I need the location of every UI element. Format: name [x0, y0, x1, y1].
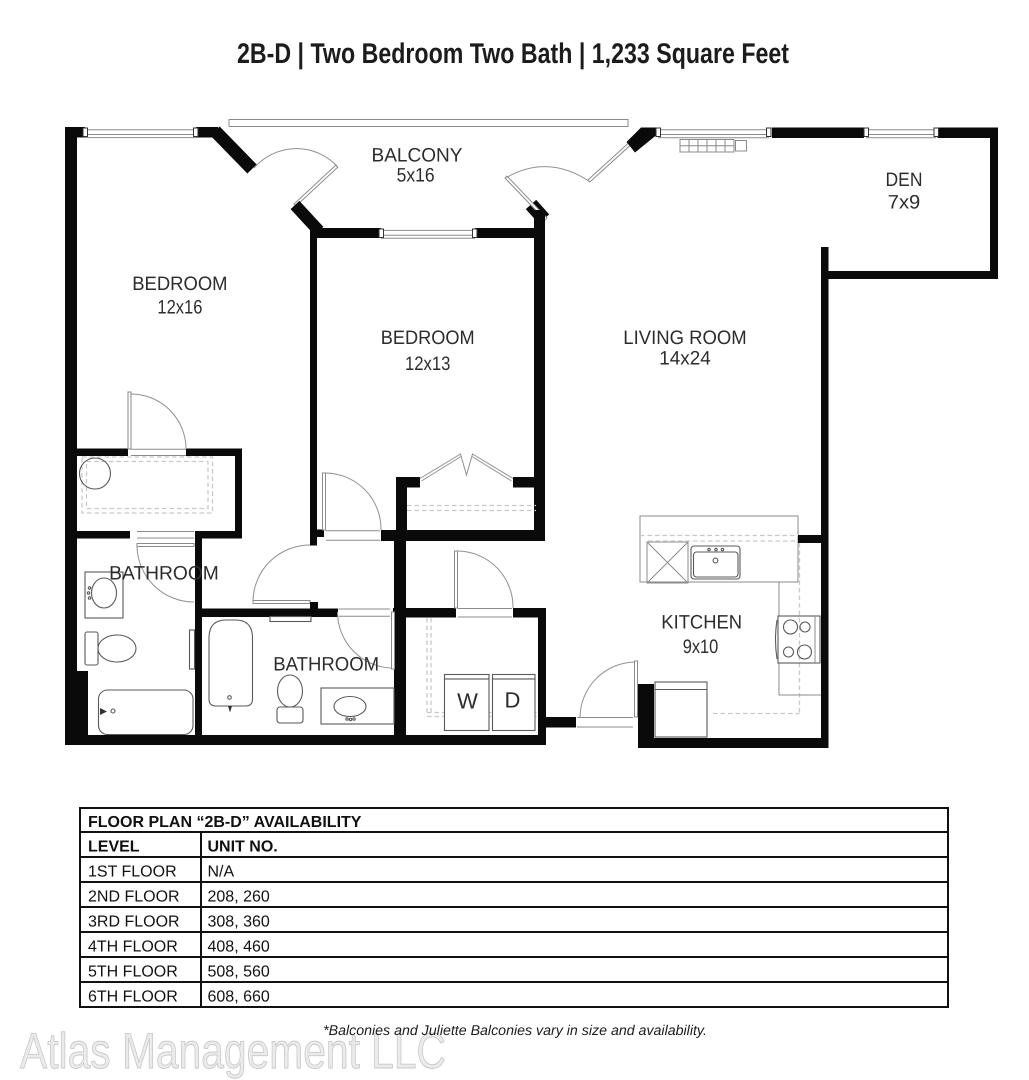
svg-text:*Balconies and Juliette Balcon: *Balconies and Juliette Balconies vary i… [323, 1023, 707, 1039]
svg-text:2ND FLOOR: 2ND FLOOR [88, 889, 180, 906]
svg-text:D: D [505, 688, 521, 713]
svg-text:9x10: 9x10 [683, 636, 719, 658]
svg-text:508, 560: 508, 560 [208, 964, 270, 981]
svg-text:408, 460: 408, 460 [208, 939, 270, 956]
svg-text:BEDROOM: BEDROOM [132, 273, 227, 295]
svg-text:BALCONY: BALCONY [372, 145, 463, 167]
svg-text:UNIT NO.: UNIT NO. [208, 839, 278, 856]
svg-text:1ST FLOOR: 1ST FLOOR [88, 864, 177, 881]
svg-text:BATHROOM: BATHROOM [273, 654, 379, 676]
svg-text:BATHROOM: BATHROOM [109, 563, 219, 585]
svg-text:5x16: 5x16 [397, 165, 435, 187]
svg-text:12x13: 12x13 [405, 353, 450, 375]
svg-text:FLOOR PLAN “2B-D” AVAILABILITY: FLOOR PLAN “2B-D” AVAILABILITY [88, 814, 362, 831]
svg-text:208, 260: 208, 260 [208, 889, 270, 906]
svg-text:14x24: 14x24 [659, 348, 711, 370]
svg-text:308, 360: 308, 360 [208, 914, 270, 931]
svg-text:4TH FLOOR: 4TH FLOOR [88, 939, 178, 956]
svg-text:W: W [457, 689, 478, 714]
svg-text:608, 660: 608, 660 [208, 989, 270, 1006]
svg-text:KITCHEN: KITCHEN [661, 612, 742, 634]
svg-text:LEVEL: LEVEL [88, 839, 140, 856]
svg-text:12x16: 12x16 [157, 296, 202, 318]
svg-text:5TH FLOOR: 5TH FLOOR [88, 964, 178, 981]
svg-text:BEDROOM: BEDROOM [381, 327, 475, 349]
svg-text:LIVING ROOM: LIVING ROOM [623, 327, 746, 349]
svg-text:6TH FLOOR: 6TH FLOOR [88, 989, 178, 1006]
svg-text:7x9: 7x9 [888, 192, 921, 214]
svg-text:3RD FLOOR: 3RD FLOOR [88, 914, 180, 931]
svg-text:DEN: DEN [886, 169, 923, 191]
svg-text:2B-D | Two Bedroom Two Bath |: 2B-D | Two Bedroom Two Bath | 1,233 Squa… [237, 38, 789, 70]
svg-text:N/A: N/A [208, 864, 235, 881]
